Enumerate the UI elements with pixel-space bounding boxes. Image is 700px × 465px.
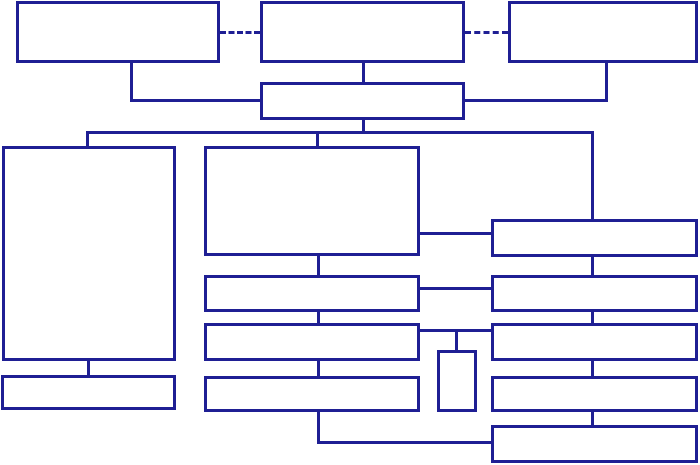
small-vertical-box [437,350,477,412]
center-right-link-2 [420,287,491,290]
center-bottom-drop [317,412,320,444]
center-chain-1 [317,256,320,275]
center-large-box [204,146,420,256]
rail-drop-center [316,131,319,146]
right-bar-4 [491,376,698,412]
main-rail [86,131,594,134]
bottom-rail [317,441,491,444]
right-bar-2 [491,275,698,312]
center-bar-3 [204,376,420,412]
right-bar-1 [491,219,698,257]
rail-drop-right [591,131,594,219]
right-chain-2 [591,312,594,323]
topleft-elbow [130,99,263,102]
center-bar-2 [204,323,420,361]
right-chain-3 [591,361,594,376]
center-bar-1 [204,275,420,312]
left-bar-link [87,361,90,375]
top-center-box [260,1,465,63]
hub-box [260,82,465,120]
dashed-link-right [465,31,508,34]
topright-drop [605,63,608,102]
center-chain-2 [317,312,320,323]
rail-drop-left [86,131,89,146]
center-right-link-1 [420,232,491,235]
topcenter-drop [362,63,365,82]
right-bar-5 [491,425,698,463]
right-chain-4 [591,412,594,425]
right-chain-1 [591,257,594,275]
left-bottom-bar [1,375,176,410]
right-bar-3 [491,323,698,361]
left-tall-box [2,146,176,361]
small-box-stub [455,330,458,350]
center-chain-3 [317,361,320,376]
flowchart-canvas [0,0,700,465]
topleft-drop [130,63,133,102]
top-right-box [508,1,698,63]
topright-elbow [465,99,608,102]
dashed-link-left [220,31,260,34]
top-left-box [16,1,220,63]
